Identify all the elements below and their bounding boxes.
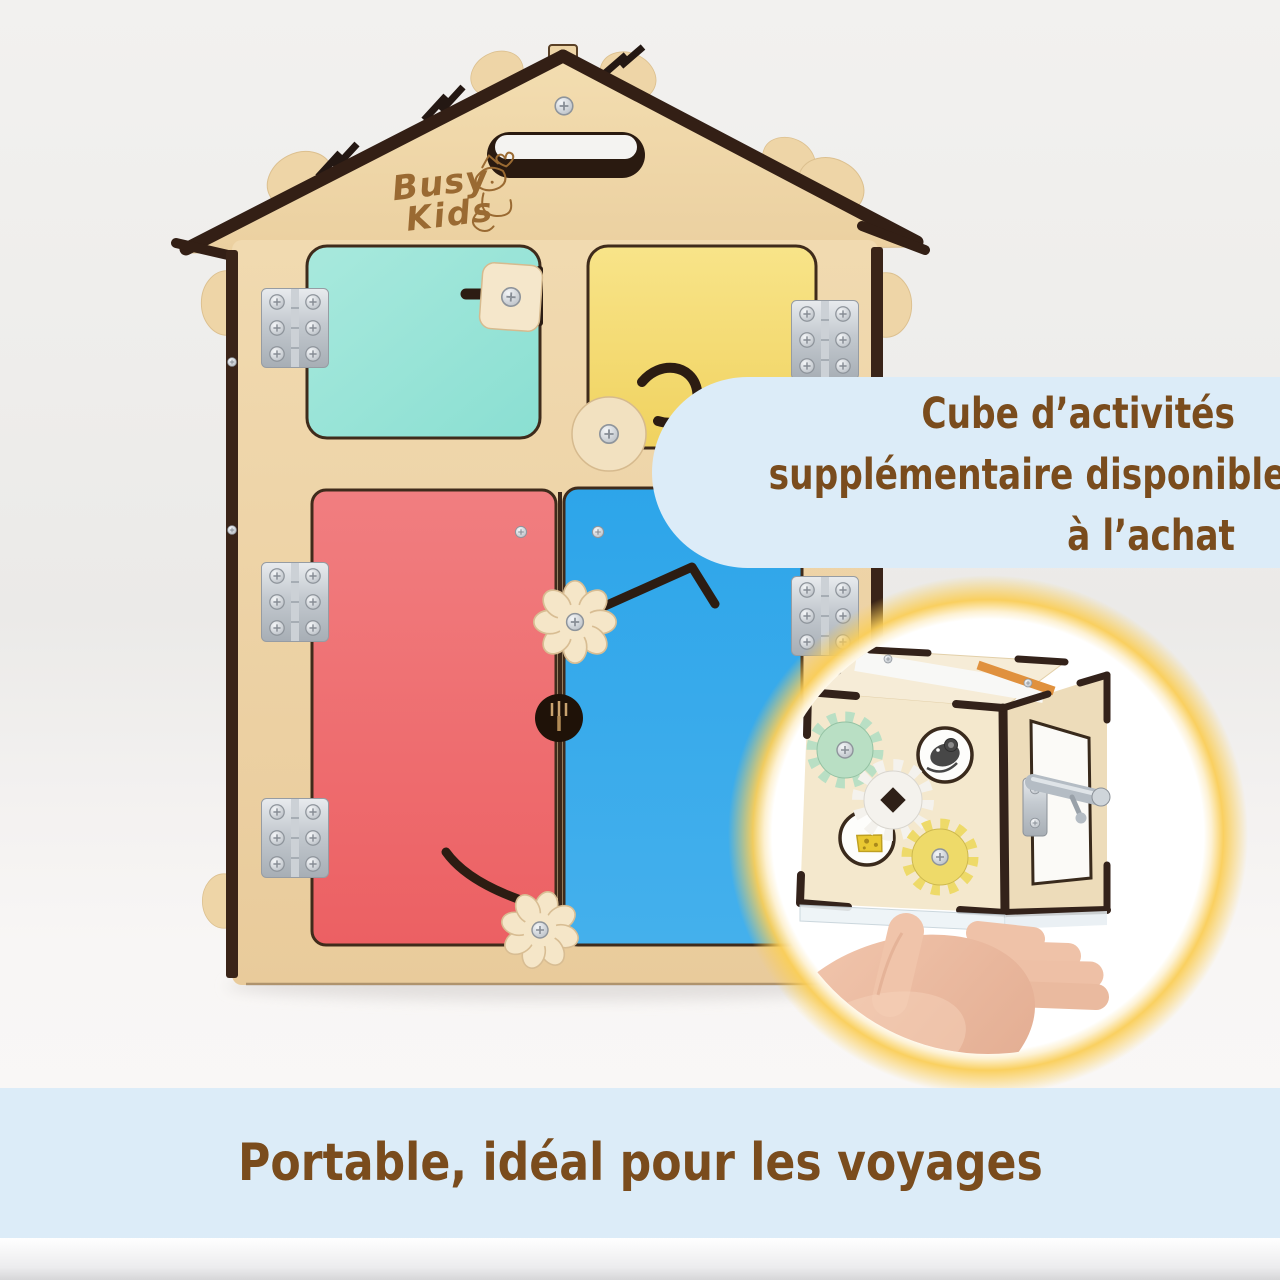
trim-screw [228, 526, 237, 535]
gear-white [858, 765, 928, 835]
hand [749, 905, 1096, 1095]
banner-text: Portable, idéal pour les voyages [238, 1088, 1043, 1238]
gear-mint [812, 717, 878, 783]
info-bubble: Cube d’activités supplémentaire disponib… [652, 377, 1280, 568]
apex-screw [555, 97, 573, 115]
body-screw [515, 526, 526, 537]
red-door [312, 490, 556, 945]
trim-screw [228, 358, 237, 367]
activity-cube-inset-photo [728, 575, 1248, 1095]
bottom-banner: Portable, idéal pour les voyages [0, 1088, 1280, 1238]
product-image: Busy Kids [0, 0, 1280, 1280]
bubble-line-1: Cube d’activités [769, 384, 1235, 445]
carry-handle-cutout [487, 132, 645, 178]
cube-top-screw [1024, 679, 1032, 687]
floor-edge [0, 1238, 1280, 1280]
flower-screw [532, 922, 548, 938]
bubble-line-2: supplémentaire disponible [769, 445, 1235, 506]
bubble-line-3: à l’achat [769, 506, 1235, 567]
round-turn-latch [572, 397, 646, 471]
square-turn-latch [479, 262, 543, 332]
body-screw [592, 526, 603, 537]
hinge-yellow-door [792, 301, 859, 380]
hinge-mint-door [262, 289, 329, 368]
hinge-red-door-top [262, 563, 329, 642]
keyhole-fork-window [535, 694, 583, 742]
mouse-window [918, 728, 972, 782]
flower-screw [567, 614, 584, 631]
hinge-red-door-bottom [262, 799, 329, 878]
activity-cube-illustration [728, 575, 1248, 1095]
gear-yellow [907, 824, 973, 890]
cube-top-screw [884, 655, 892, 663]
